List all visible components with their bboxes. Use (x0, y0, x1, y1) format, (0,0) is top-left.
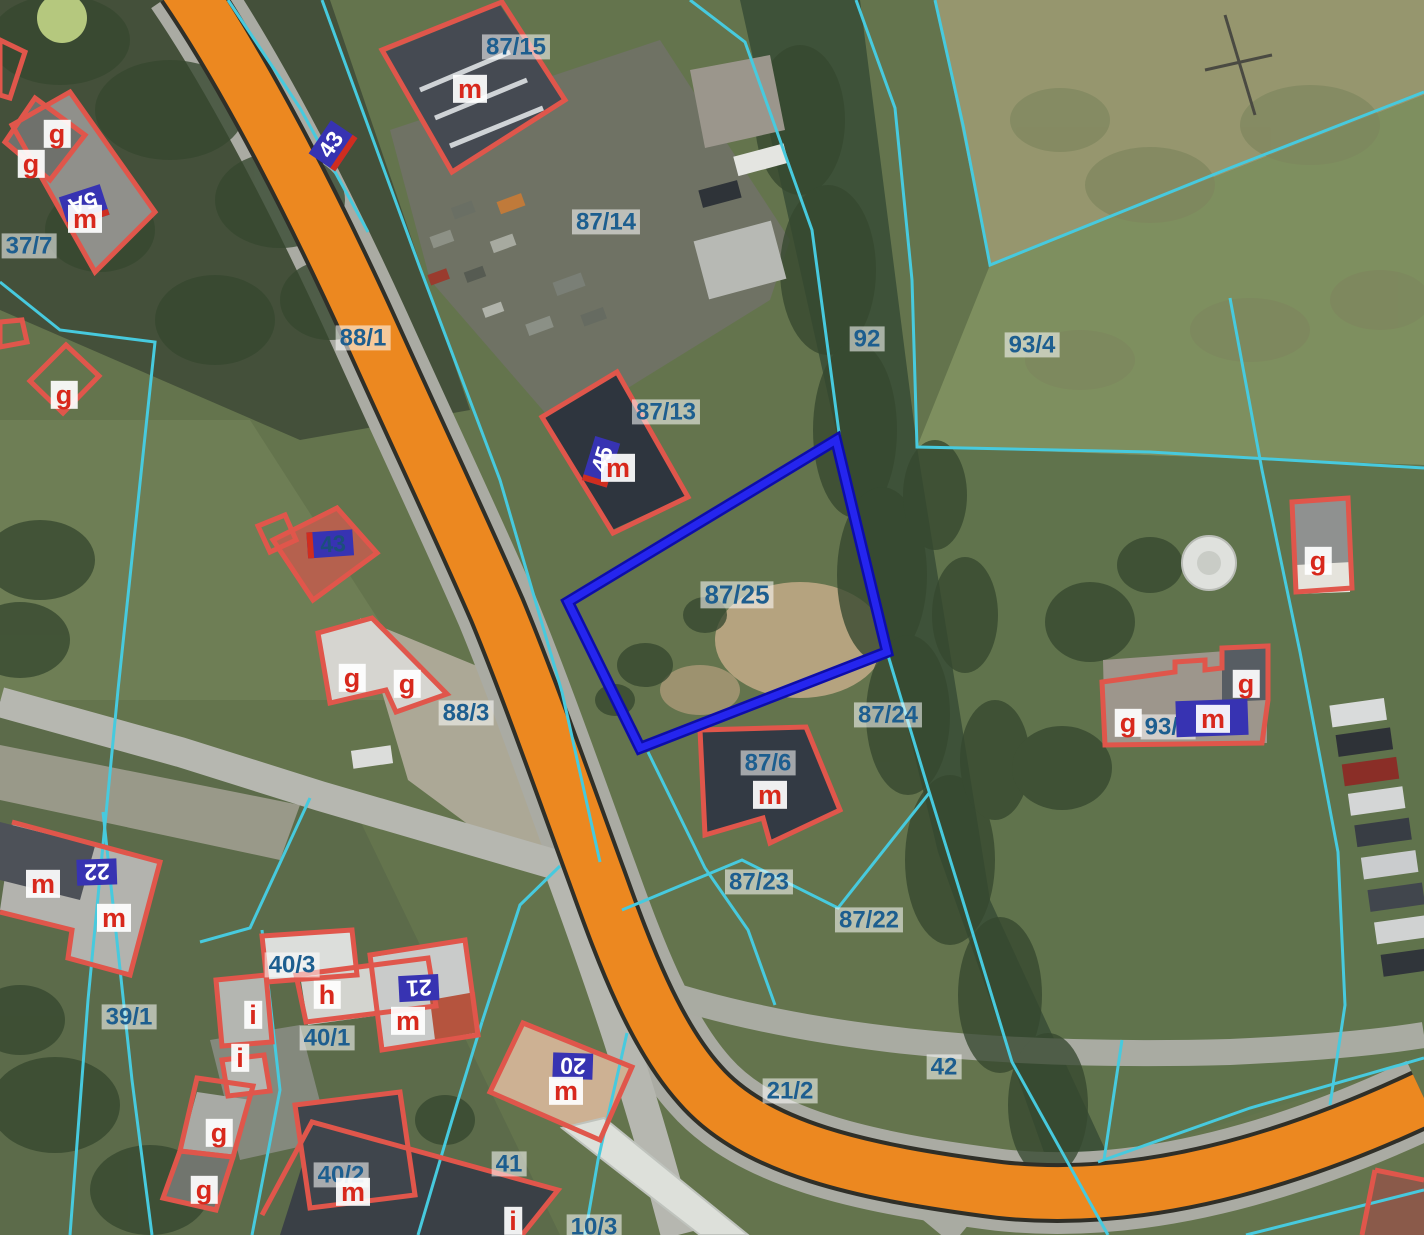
function-label-m: m (1196, 705, 1230, 733)
function-label-g: g (18, 150, 45, 178)
parcel-label: 40/1 (300, 1025, 355, 1050)
parcel-label: 21/2 (763, 1078, 818, 1103)
function-label-m: m (26, 870, 60, 898)
function-label-m: m (68, 205, 102, 233)
parcel-label: 87/14 (572, 209, 640, 234)
parcel-label: 42 (927, 1054, 962, 1079)
parcel-label: 37/7 (2, 233, 57, 258)
parcel-label: 88/1 (336, 325, 391, 350)
parcel-label: 87/13 (632, 399, 700, 424)
function-label-g: g (394, 670, 421, 698)
function-label-g: g (1305, 547, 1332, 575)
function-label-g: g (44, 120, 71, 148)
parcel-label: 41 (492, 1151, 527, 1176)
parcel-label: 87/24 (854, 702, 922, 727)
parcel-label: 40/3 (265, 952, 320, 977)
function-label-m: m (97, 904, 131, 932)
parcel-label: 87/22 (835, 907, 903, 932)
aerial-map-graphics (0, 0, 1424, 1235)
address-plate: 22 (77, 858, 117, 886)
function-label-m: m (601, 454, 635, 482)
function-label-i: i (231, 1044, 249, 1072)
function-label-g: g (339, 664, 366, 692)
function-label-g: g (51, 381, 78, 409)
parcel-label: 39/1 (102, 1004, 157, 1029)
function-label-m: m (549, 1077, 583, 1105)
function-label-m: m (336, 1178, 370, 1206)
parcel-label: 87/15 (482, 34, 550, 59)
function-label-g: g (191, 1176, 218, 1204)
function-label-m: m (391, 1007, 425, 1035)
aerial-imagery-layer (0, 0, 1424, 1235)
function-label-g: g (1115, 709, 1142, 737)
function-label-h: h (314, 981, 341, 1009)
parcel-label: 10/3 (567, 1214, 622, 1235)
address-plate: 21 (399, 974, 440, 1002)
function-label-g: g (1233, 670, 1260, 698)
function-label-i: i (244, 1001, 262, 1029)
parcel-label: 87/23 (725, 869, 793, 894)
map-canvas[interactable]: 37/7 88/1 87/15 87/14 87/13 92 93/4 87/2… (0, 0, 1424, 1235)
parcel-label: 87/6 (741, 750, 796, 775)
parcel-label: 92 (850, 326, 885, 351)
function-label-i: i (504, 1207, 522, 1235)
function-label-m: m (453, 75, 487, 103)
function-label-m: m (753, 781, 787, 809)
address-plate: 43 (306, 529, 353, 558)
parcel-label: 93/4 (1005, 332, 1060, 357)
function-label-g: g (206, 1119, 233, 1147)
selected-parcel-label: 87/25 (700, 581, 773, 608)
parcel-label: 88/3 (439, 700, 494, 725)
